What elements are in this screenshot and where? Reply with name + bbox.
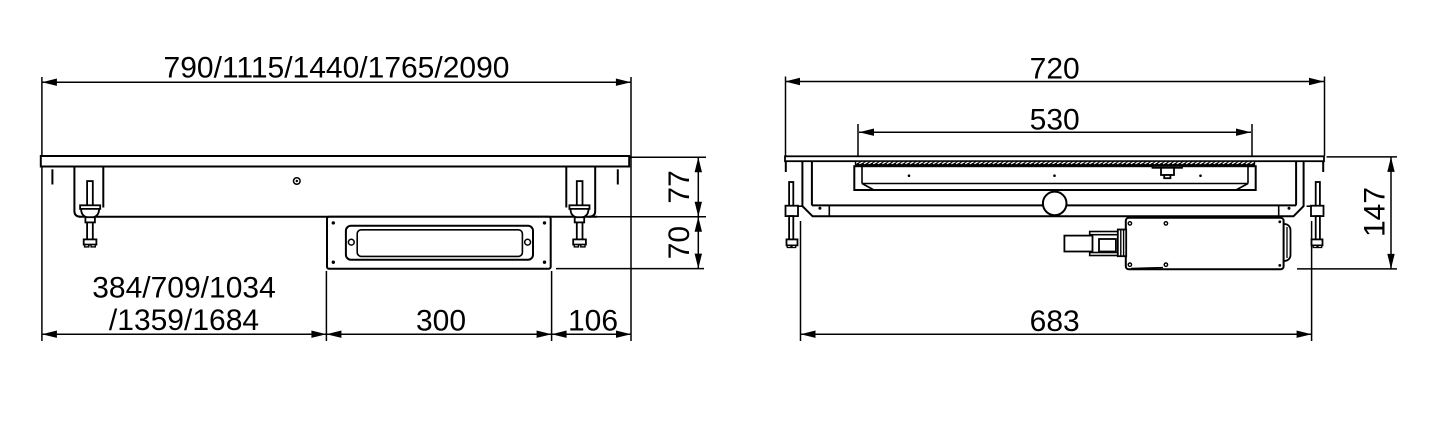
svg-text:147: 147 [1358, 187, 1391, 237]
svg-text:683: 683 [1030, 305, 1080, 338]
svg-text:790/1115/1440/1765/2090: 790/1115/1440/1765/2090 [164, 52, 510, 85]
svg-text:530: 530 [1030, 104, 1080, 137]
svg-text:77: 77 [663, 170, 696, 203]
svg-text:384/709/1034: 384/709/1034 [92, 272, 276, 305]
svg-text:106: 106 [568, 304, 618, 337]
svg-text:/1359/1684: /1359/1684 [109, 304, 259, 337]
svg-text:300: 300 [416, 304, 466, 337]
svg-text:720: 720 [1030, 53, 1080, 86]
svg-text:70: 70 [663, 226, 696, 259]
